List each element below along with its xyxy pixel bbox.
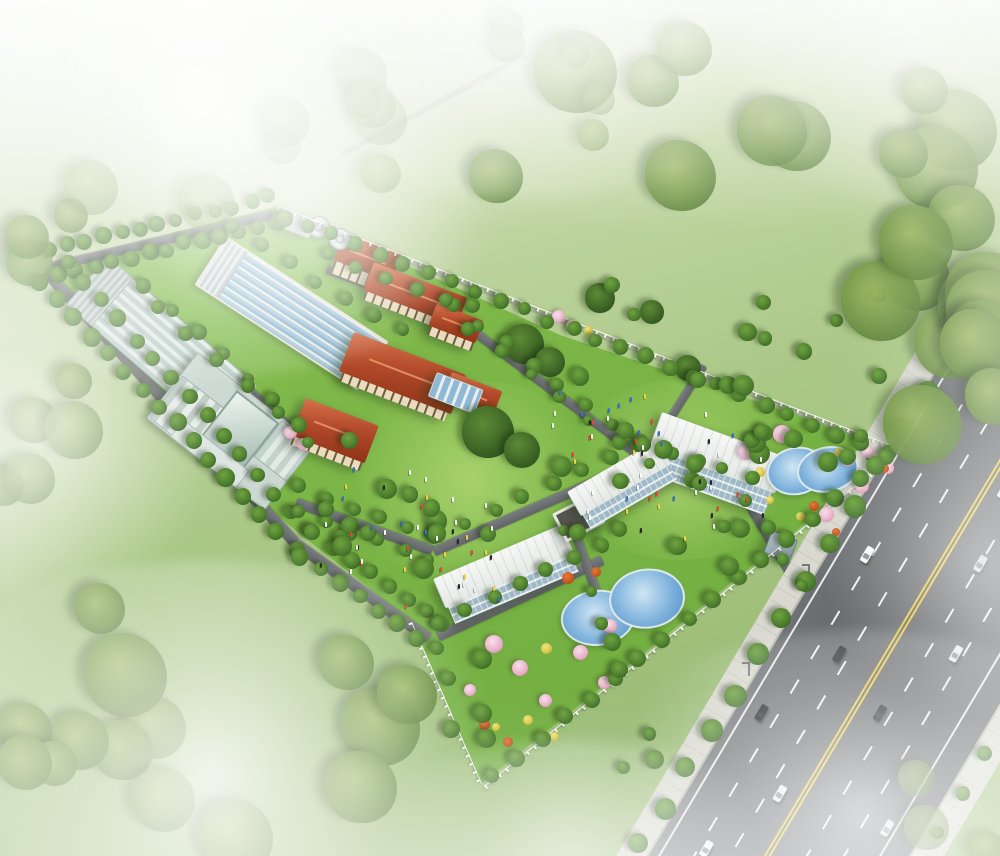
pedestrian (710, 485, 712, 490)
pedestrian (552, 423, 554, 428)
pedestrian (574, 459, 576, 464)
pedestrian (474, 587, 476, 592)
pedestrian (464, 574, 466, 579)
pedestrian (458, 584, 460, 589)
pedestrian (626, 509, 628, 514)
pedestrian (498, 597, 500, 602)
pedestrian (587, 509, 589, 514)
pedestrian (471, 550, 473, 555)
pedestrian (452, 497, 454, 502)
pedestrian (737, 492, 739, 497)
pedestrian (325, 522, 327, 527)
pedestrian (452, 529, 454, 534)
pedestrian (350, 569, 352, 574)
pedestrian (554, 411, 556, 416)
pedestrian (637, 485, 639, 490)
pedestrian (320, 563, 322, 568)
pedestrian (640, 528, 642, 533)
pedestrian (421, 504, 423, 509)
pedestrian (684, 536, 686, 541)
pedestrian (485, 503, 487, 508)
pedestrian (361, 559, 363, 564)
pedestrian (760, 457, 762, 462)
pedestrian (607, 416, 609, 421)
pedestrian (746, 497, 748, 502)
pedestrian (440, 567, 442, 572)
pedestrian (642, 445, 644, 450)
pedestrian (409, 470, 411, 475)
pedestrian (608, 408, 610, 413)
pedestrian (710, 480, 712, 485)
pedestrian (635, 439, 637, 444)
pedestrian (405, 604, 407, 609)
pedestrian (630, 477, 632, 482)
pedestrian (651, 419, 653, 424)
aerial-campus-rendering (0, 0, 1000, 856)
pedestrian (718, 452, 720, 457)
pedestrian (630, 397, 632, 402)
pedestrian (410, 554, 412, 559)
pedestrian (581, 412, 583, 417)
pedestrian (589, 515, 591, 520)
pedestrian (626, 496, 628, 501)
pedestrian (708, 439, 710, 444)
pedestrian (457, 539, 459, 544)
pedestrian (658, 431, 660, 436)
pedestrian (371, 525, 373, 530)
pedestrian (559, 390, 561, 395)
pedestrian (436, 536, 438, 541)
pedestrian (466, 535, 468, 540)
pedestrian (572, 452, 574, 457)
pedestrian (713, 524, 715, 529)
pedestrian (493, 586, 495, 591)
pedestrian (633, 450, 635, 455)
pedestrian (485, 550, 487, 555)
pedestrian (356, 545, 358, 550)
pedestrian (345, 484, 347, 489)
pedestrian (711, 513, 713, 518)
pedestrian (407, 546, 409, 551)
pedestrian (699, 479, 701, 484)
pedestrian (705, 412, 707, 417)
pedestrian (592, 490, 594, 495)
pedestrian (444, 552, 446, 557)
pedestrian (591, 434, 593, 439)
pedestrian (350, 532, 352, 537)
pedestrian (463, 582, 465, 587)
pedestrian (717, 506, 719, 511)
pedestrian (644, 394, 646, 399)
pedestrian (661, 441, 663, 446)
pedestrian (404, 567, 406, 572)
pedestrian (491, 526, 493, 531)
pedestrian (641, 451, 643, 456)
pedestrian (673, 496, 675, 501)
pedestrian (695, 490, 697, 495)
pedestrian (417, 525, 419, 530)
pedestrian (656, 491, 658, 496)
pedestrian (425, 477, 427, 482)
pedestrian (342, 496, 344, 501)
pedestrian (640, 473, 642, 478)
pedestrian (425, 530, 427, 535)
pedestrian (384, 530, 386, 535)
pedestrian (353, 467, 355, 472)
pedestrian (592, 420, 594, 425)
pedestrian (649, 496, 651, 501)
pedestrian (455, 520, 457, 525)
pedestrian (762, 513, 764, 518)
pedestrian (658, 504, 660, 509)
pedestrian (589, 420, 591, 425)
pedestrian (732, 433, 734, 438)
pedestrian (490, 555, 492, 560)
pedestrian (638, 430, 640, 435)
pedestrian (426, 495, 428, 500)
pedestrian (383, 485, 385, 490)
pedestrian (401, 521, 403, 526)
pedestrian (618, 403, 620, 408)
